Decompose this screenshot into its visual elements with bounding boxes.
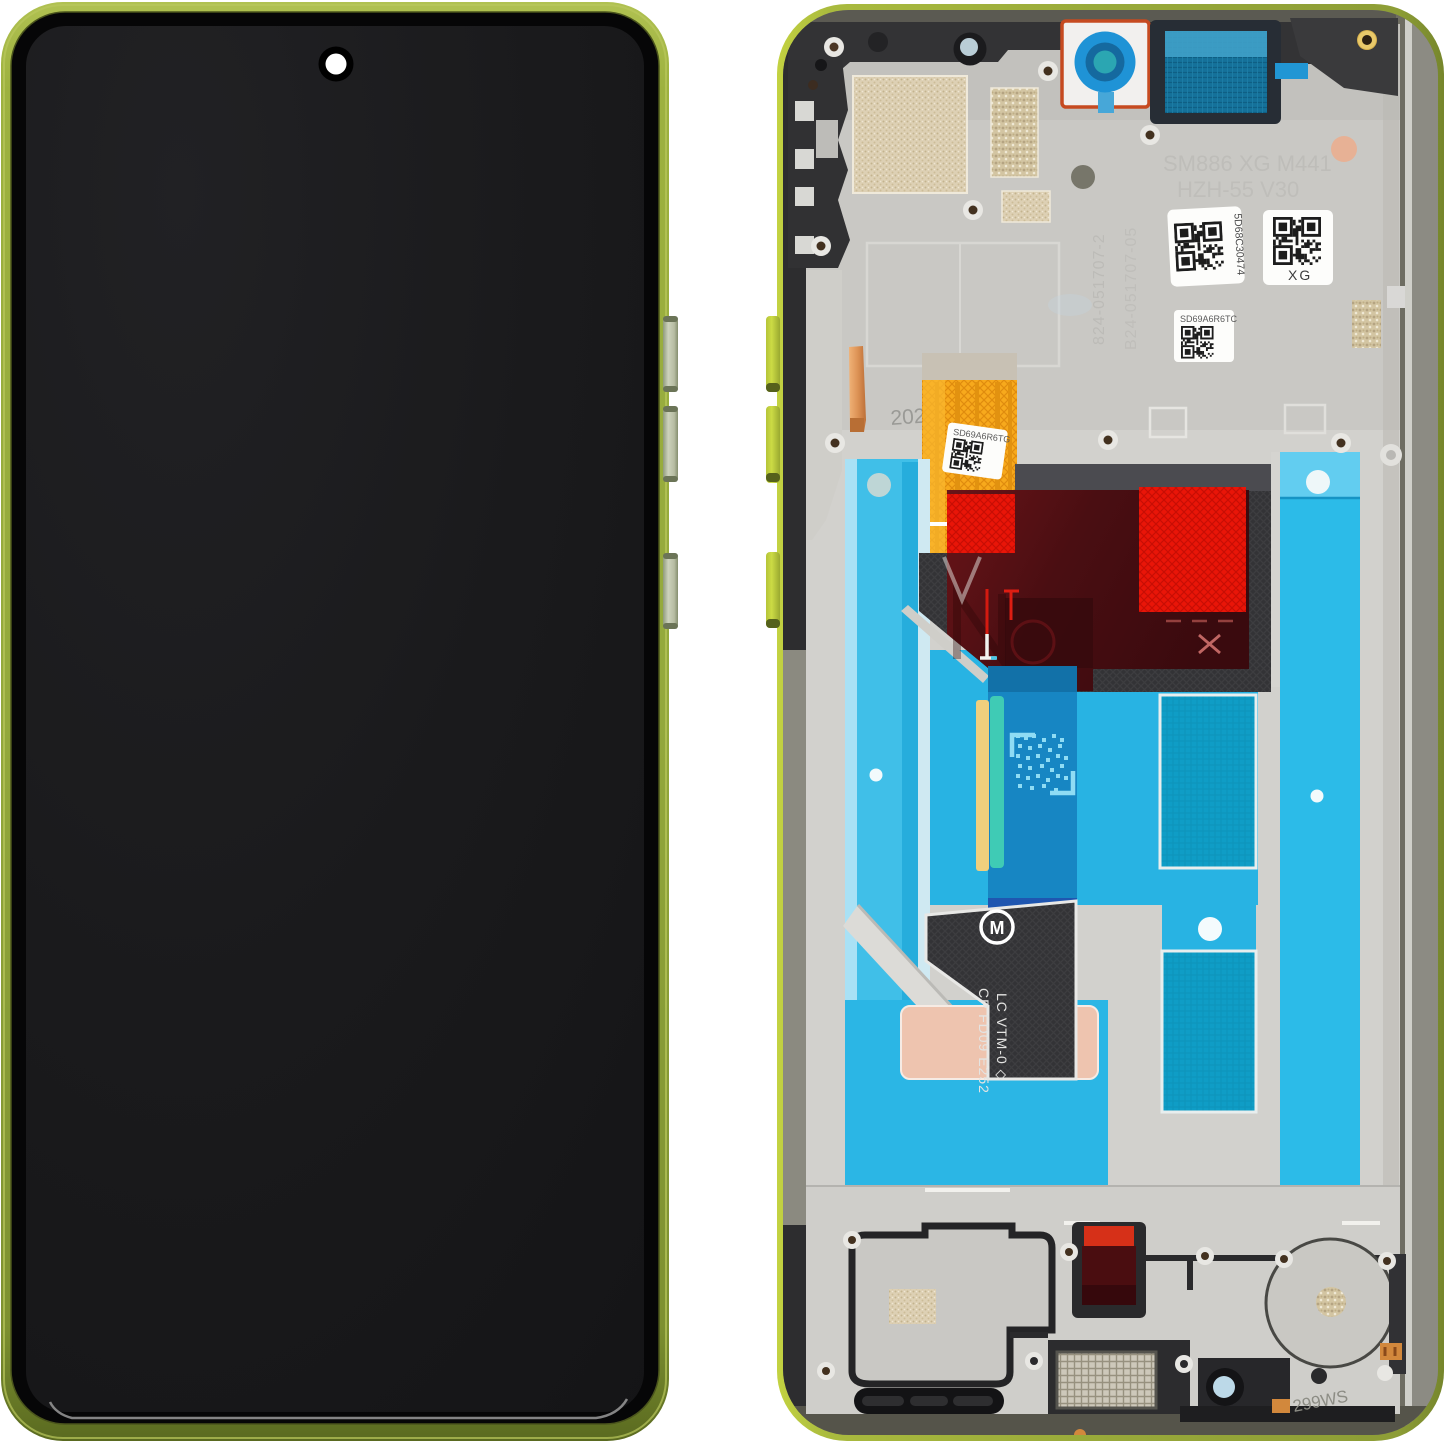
svg-text:M: M	[990, 918, 1005, 938]
svg-text:SD69A6R6TC: SD69A6R6TC	[1180, 314, 1238, 324]
svg-text:824-051707-2: 824-051707-2	[1091, 233, 1108, 345]
svg-text:CP FD09 E252: CP FD09 E252	[976, 988, 992, 1094]
svg-text:XG: XG	[1288, 267, 1312, 283]
svg-text:LC VTM-0 ◇: LC VTM-0 ◇	[994, 993, 1010, 1081]
svg-text:HZH-55 V30: HZH-55 V30	[1177, 177, 1299, 202]
svg-text:B24-051707-05: B24-051707-05	[1123, 227, 1140, 350]
svg-text:SM886 XG M441: SM886 XG M441	[1163, 151, 1332, 176]
